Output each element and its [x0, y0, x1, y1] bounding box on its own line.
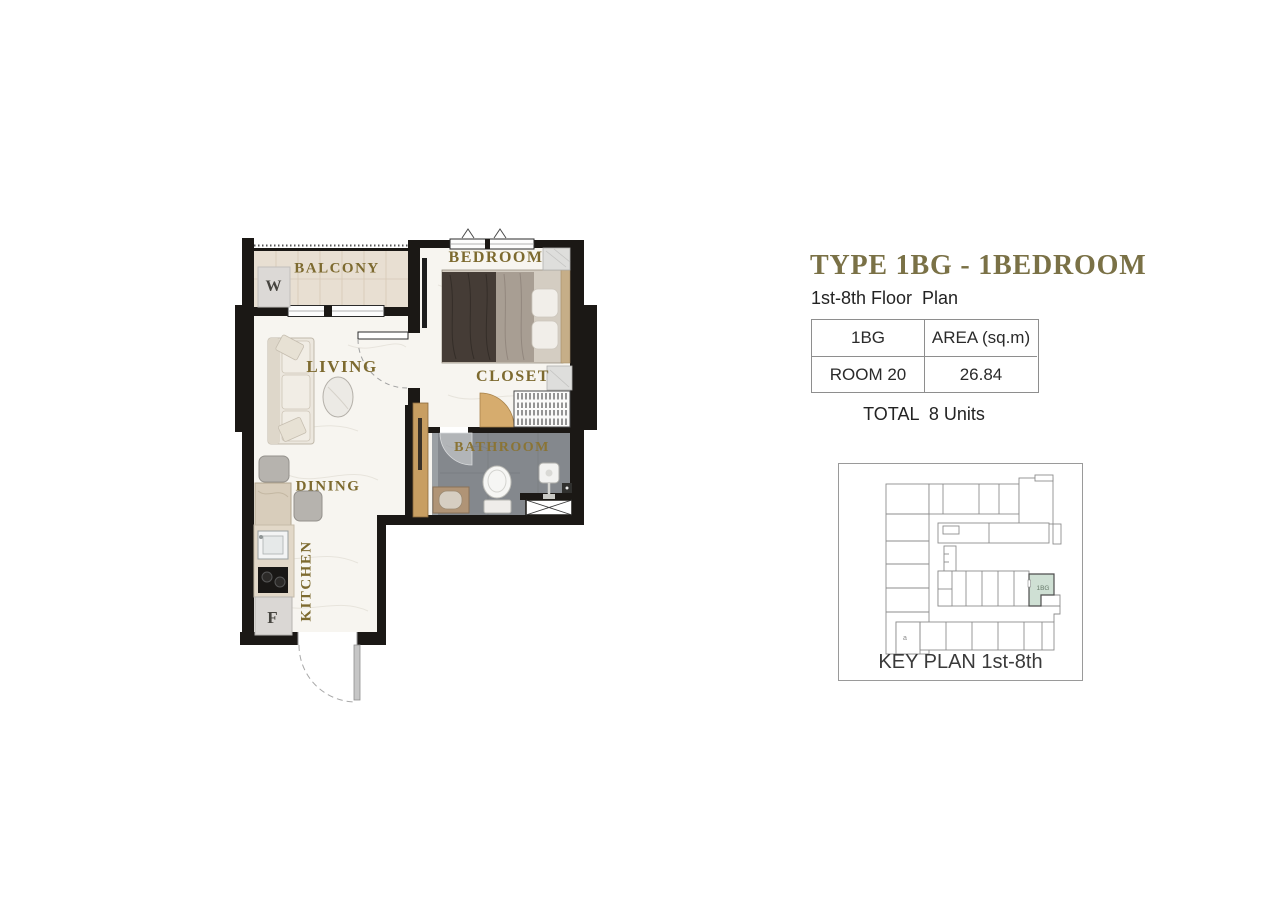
table-cell-area-header: AREA (sq.m): [924, 320, 1037, 356]
page-subtitle: 1st-8th Floor Plan: [811, 288, 958, 309]
room-label-bathroom: BATHROOM: [454, 440, 550, 456]
floor-plan-drawing: [228, 225, 608, 705]
washer-label: W: [266, 278, 283, 296]
total-units: TOTAL 8 Units: [811, 404, 1037, 425]
key-plan-drawing: 1BG a: [839, 464, 1080, 678]
table-cell-room: ROOM 20: [812, 356, 924, 392]
room-label-kitchen: KITCHEN: [299, 540, 316, 621]
key-plan-box: 1BG a KEY PLAN 1st-8th: [838, 463, 1083, 681]
room-label-dining: DINING: [296, 479, 361, 496]
key-plan-stair-label: a: [903, 635, 907, 642]
table-cell-type-header: 1BG: [812, 320, 924, 356]
floor-plan: BALCONY W BEDROOM LIVING CLOSET BATHROOM…: [228, 225, 608, 705]
fridge-label: F: [267, 608, 278, 628]
room-label-living: LIVING: [306, 357, 377, 377]
room-label-closet: CLOSET: [476, 368, 550, 386]
key-plan-caption: KEY PLAN 1st-8th: [839, 651, 1082, 674]
room-label-balcony: BALCONY: [294, 261, 380, 278]
brochure-page: BALCONY W BEDROOM LIVING CLOSET BATHROOM…: [0, 0, 1283, 906]
area-table: 1BG AREA (sq.m) ROOM 20 26.84: [811, 319, 1039, 393]
room-label-bedroom: BEDROOM: [449, 249, 544, 267]
table-cell-area-value: 26.84: [924, 356, 1037, 392]
page-title: TYPE 1BG - 1BEDROOM: [810, 250, 1146, 282]
key-plan-unit-label: 1BG: [1036, 585, 1049, 592]
